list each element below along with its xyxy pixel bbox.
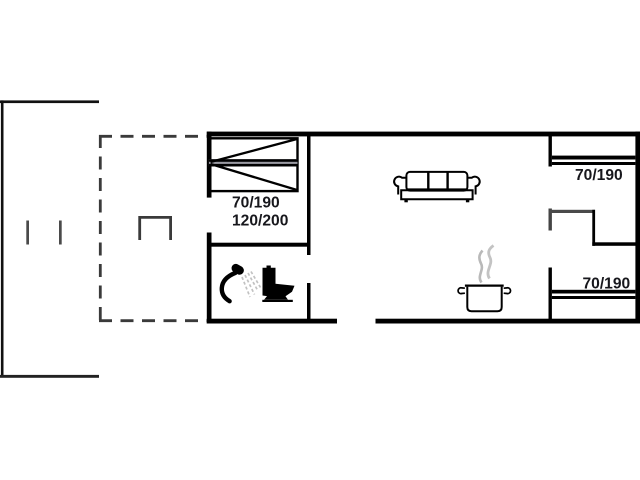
- svg-text:70/190: 70/190: [575, 167, 623, 184]
- svg-text:70/190: 70/190: [232, 194, 280, 211]
- svg-text:70/190: 70/190: [583, 275, 631, 292]
- svg-text:120/200: 120/200: [232, 213, 289, 230]
